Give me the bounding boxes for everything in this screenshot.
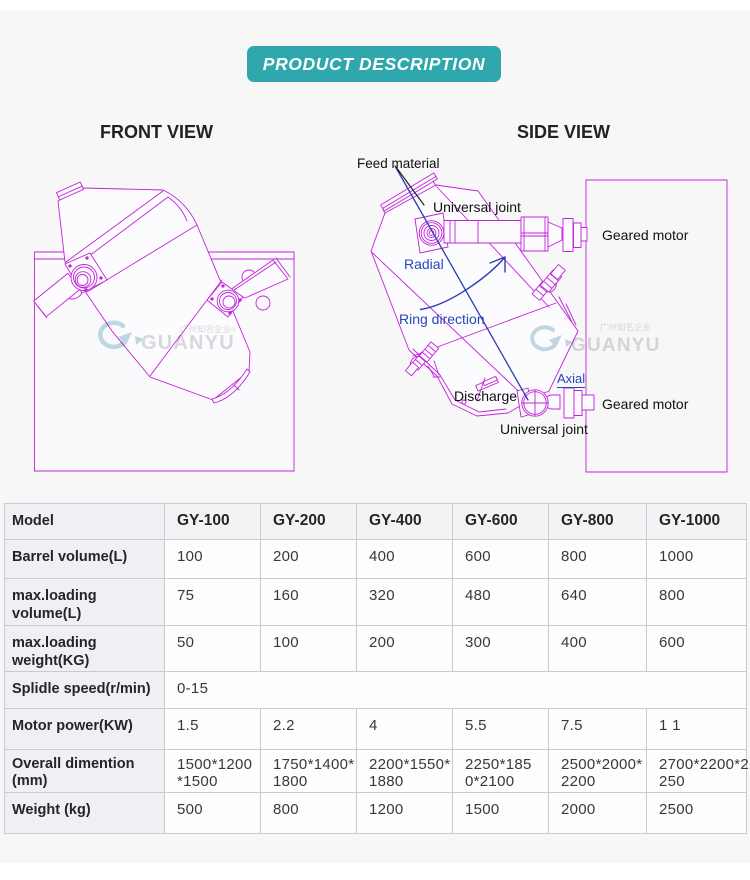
svg-text:GUANYU: GUANYU [141,332,235,354]
svg-text:GUANYU: GUANYU [571,335,661,356]
svg-text:广州知名企业: 广州知名企业 [600,322,651,332]
